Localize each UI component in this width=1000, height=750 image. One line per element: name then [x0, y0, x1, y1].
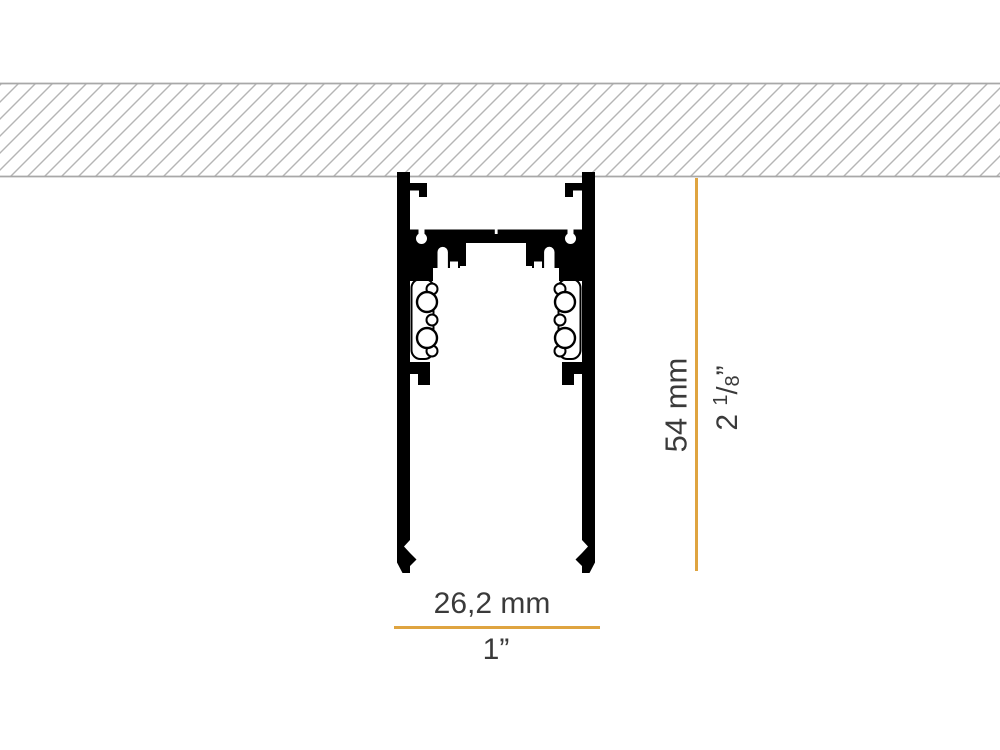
height-imperial-label: 2 1/8”: [711, 365, 743, 430]
height-imperial-numerator: 1: [710, 395, 732, 406]
track-profile-cross-section: [397, 172, 595, 573]
profile-center-shelf: [410, 230, 582, 282]
height-imperial-slash: /: [712, 386, 744, 394]
technical-drawing-canvas: 26,2 mm 1” 54 mm 2 1/8”: [0, 0, 1000, 750]
height-metric-label: 54 mm: [661, 358, 692, 453]
ceiling-hatch-band: [0, 83, 1000, 177]
height-imperial-whole: 2: [711, 414, 744, 431]
width-metric-label: 26,2 mm: [434, 589, 551, 619]
height-imperial-unit-mark: ”: [711, 365, 744, 375]
width-imperial-label: 1”: [483, 635, 510, 665]
height-imperial-denominator: 8: [722, 375, 744, 386]
